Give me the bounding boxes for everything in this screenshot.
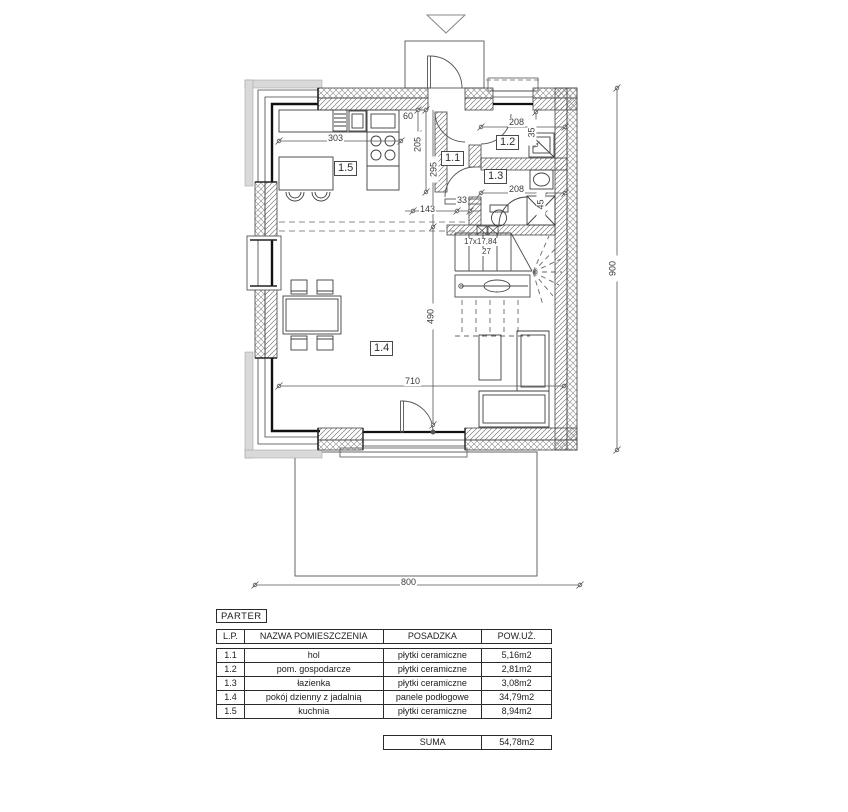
legend-title: PARTER [216,609,267,623]
legend-summary-row: SUMA 54,78m2 [383,735,552,750]
header-lp: L.P. [217,630,245,643]
patio-door-leaf [401,401,404,432]
table-row: 1.1 hol płytki ceramiczne 5,16m2 [217,649,551,663]
summary-label: SUMA [384,736,482,749]
dim-208-bath: 208 [508,185,525,194]
room-label-living: 1.4 [370,341,393,356]
dim-143: 143 [419,205,436,214]
dim-45: 45 [537,192,546,218]
cell-floor: płytki ceramiczne [384,677,483,690]
stairs-note: 17x17,84 [463,238,498,246]
terrace-outline [295,452,537,576]
bath-door-arc [445,167,475,197]
stove-burners [371,136,395,160]
cell-name: pokój dzienny z jadalnią [245,691,384,704]
dim-35: 35 [528,120,537,146]
open-boundary-dashed [279,222,469,231]
entrance-marker-triangle [427,15,465,33]
cell-area: 8,94m2 [482,705,551,718]
chair [317,336,333,350]
kitchen-counter [279,110,367,132]
dim-total-width: 800 [400,578,417,587]
dim-60: 60 [402,112,414,121]
cell-floor: płytki ceramiczne [384,705,483,718]
room-label-hall: 1.1 [441,151,464,166]
coffee-table [479,335,501,380]
entrance-door-leaf [428,56,431,88]
legend-body: 1.1 hol płytki ceramiczne 5,16m2 1.2 pom… [216,648,552,719]
cell-floor: płytki ceramiczne [384,663,483,676]
dim-303: 303 [327,134,344,143]
header-area: POW.UŻ. [482,630,551,643]
chair [291,336,307,350]
chair [291,280,307,294]
entrance-door-arc [430,56,462,88]
kitchen-island [279,157,333,190]
porch-outline [405,41,484,88]
bar-stools [286,192,330,201]
patio-door-arc [402,401,433,432]
legend-header-row: L.P. NAZWA POMIESZCZENIA POSADZKA POW.UŻ… [216,629,552,644]
cell-area: 3,08m2 [482,677,551,690]
dim-710: 710 [404,377,421,386]
dim-total-height: 900 [609,256,618,282]
stairs [455,233,562,336]
header-name: NAZWA POMIESZCZENIA [245,630,384,643]
dim-490: 490 [427,304,436,330]
room-label-bathroom: 1.3 [484,169,507,184]
kitchen-fixtures [279,110,399,201]
dining-table [283,296,341,334]
dining-set [283,280,341,350]
cell-area: 34,79m2 [482,691,551,704]
table-row: 1.4 pokój dzienny z jadalnią panele podł… [217,691,551,705]
drainer [333,110,347,131]
oven-unit [367,110,399,132]
header-floor: POSADZKA [384,630,483,643]
cell-name: hol [245,649,384,662]
dim-208-utility: 208 [508,118,525,127]
room-label-kitchen: 1.5 [334,161,357,176]
stairs-tread: 27 [481,248,492,256]
cell-lp: 1.1 [217,649,245,662]
toilet-tank [490,205,508,212]
cell-name: kuchnia [245,705,384,718]
cell-lp: 1.5 [217,705,245,718]
dim-295: 295 [430,157,439,183]
cell-area: 2,81m2 [482,663,551,676]
cell-name: łazienka [245,677,384,690]
cell-floor: panele podłogowe [384,691,483,704]
table-row: 1.5 kuchnia płytki ceramiczne 8,94m2 [217,705,551,718]
chair [317,280,333,294]
room-label-utility: 1.2 [496,135,519,150]
cell-area: 5,16m2 [482,649,551,662]
cell-lp: 1.2 [217,663,245,676]
cell-floor: płytki ceramiczne [384,649,483,662]
floorplan-page: 800 900 303 60 205 295 143 33 208 35 208… [0,0,848,812]
summary-value: 54,78m2 [482,736,551,749]
corner-sofa [479,331,549,427]
table-row: 1.3 łazienka płytki ceramiczne 3,08m2 [217,677,551,691]
cell-name: pom. gospodarcze [245,663,384,676]
cell-lp: 1.3 [217,677,245,690]
sofa-group [479,331,549,427]
table-row: 1.2 pom. gospodarcze płytki ceramiczne 2… [217,663,551,677]
dim-205: 205 [414,132,423,158]
cell-lp: 1.4 [217,691,245,704]
dim-33: 33 [456,196,468,205]
